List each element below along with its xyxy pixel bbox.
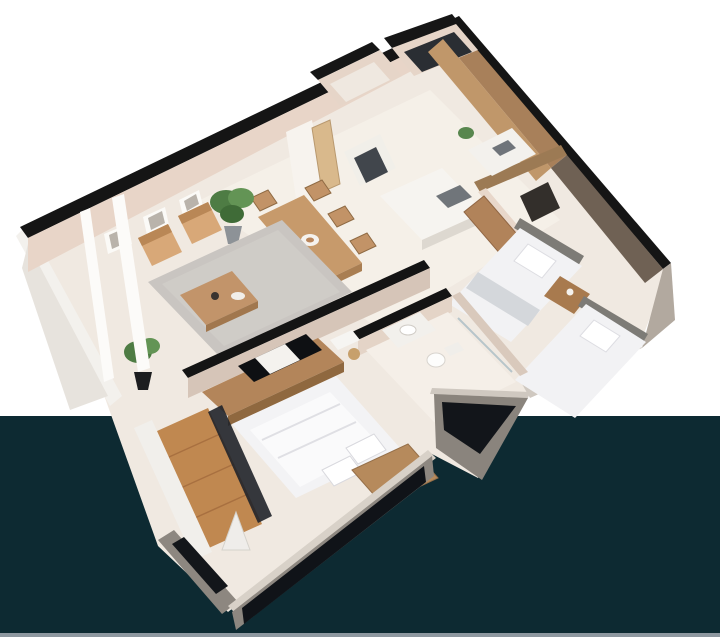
toilet — [427, 353, 445, 367]
nightstand-lamp — [567, 289, 574, 296]
tall-plant-leaves — [228, 188, 254, 208]
footer-strip — [0, 633, 720, 637]
console-basket — [348, 348, 360, 360]
sink-basin — [400, 325, 416, 335]
tall-plant-leaves — [220, 205, 244, 223]
coffee-table-decor-dark — [211, 292, 219, 300]
floor-plan-render — [0, 0, 720, 637]
kitchen-plant — [458, 127, 474, 139]
coffee-table-tray — [231, 292, 245, 300]
screenshot-root — [0, 0, 720, 637]
table-bowl-inner — [306, 238, 314, 243]
